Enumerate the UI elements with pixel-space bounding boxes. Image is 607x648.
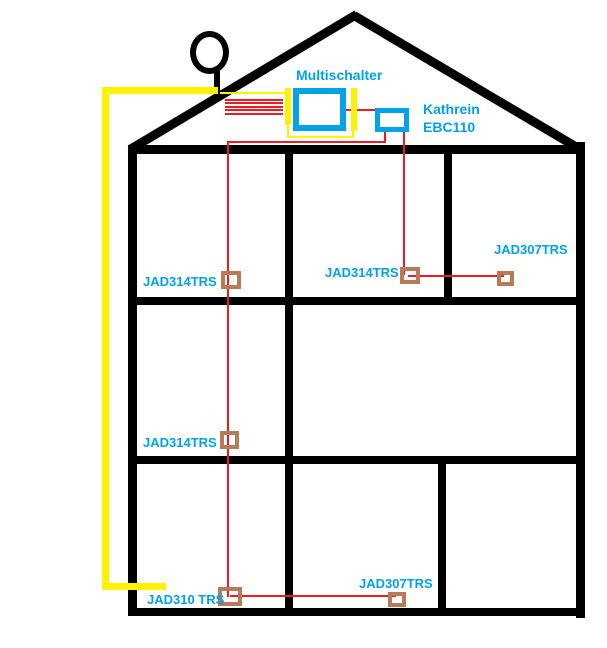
outlet-floor1-left	[221, 271, 241, 289]
coax-main-riser	[227, 141, 229, 597]
yellow-connector-right-rise	[352, 129, 354, 138]
outlet-label-floor3-right: JAD307TRS	[359, 577, 433, 591]
sat-cable-vertical	[102, 87, 109, 590]
sat-cable-bottom-horizontal	[102, 583, 166, 590]
kathrein-ebc110-box	[375, 108, 409, 132]
coax-antenna-line-1	[225, 99, 283, 101]
outlet-floor2-left	[220, 431, 239, 449]
yellow-connector-horizontal	[287, 136, 354, 138]
multischalter-left-yellow-bar	[285, 88, 291, 125]
antenna-loop-icon	[190, 31, 229, 74]
outlet-floor1-right	[497, 271, 514, 286]
house-bottom-line	[128, 608, 585, 616]
coax-antenna-line-3	[225, 106, 283, 108]
house-wiring-diagram: Multischalter Kathrein EBC110 JAD314TRS …	[0, 0, 607, 648]
house-left-wall	[128, 145, 137, 616]
multischalter-right-yellow-bar	[351, 88, 357, 131]
kathrein-label: Kathrein	[423, 102, 480, 117]
coax-kathrein-drop-right	[403, 130, 405, 275]
coax-antenna-line-2	[225, 102, 283, 104]
house-right-wall	[576, 142, 585, 618]
coax-antenna-line-5	[225, 113, 283, 115]
house-ceiling-line	[128, 145, 585, 154]
outlet-label-floor2-left: JAD314TRS	[143, 436, 217, 450]
floor3-wall-right	[438, 464, 446, 608]
multischalter-box	[293, 88, 346, 131]
outlet-label-floor3-left: JAD310 TRS	[147, 593, 224, 607]
outlet-label-floor1-mid: JAD314TRS	[325, 266, 399, 280]
outlet-label-floor1-left: JAD314TRS	[143, 275, 217, 289]
floor1-line	[128, 297, 585, 305]
floor2-line	[128, 456, 585, 464]
floor1-wall-left	[285, 154, 293, 297]
outlet-label-floor1-right: JAD307TRS	[494, 243, 568, 257]
coax-attic-horizontal	[227, 141, 386, 143]
floor3-wall-left	[285, 464, 293, 608]
floor2-wall	[285, 305, 293, 456]
coax-floor1-horizontal	[408, 275, 504, 277]
outlet-floor3-right	[388, 592, 406, 607]
kathrein-model-label: EBC110	[423, 120, 475, 135]
coax-antenna-line-4	[225, 109, 283, 111]
sat-cable-antenna-feed	[220, 92, 286, 94]
coax-floor3-horizontal	[230, 595, 396, 597]
outlet-floor1-mid	[400, 267, 420, 284]
multischalter-label: Multischalter	[296, 68, 382, 83]
sat-cable-top-horizontal	[102, 87, 218, 94]
